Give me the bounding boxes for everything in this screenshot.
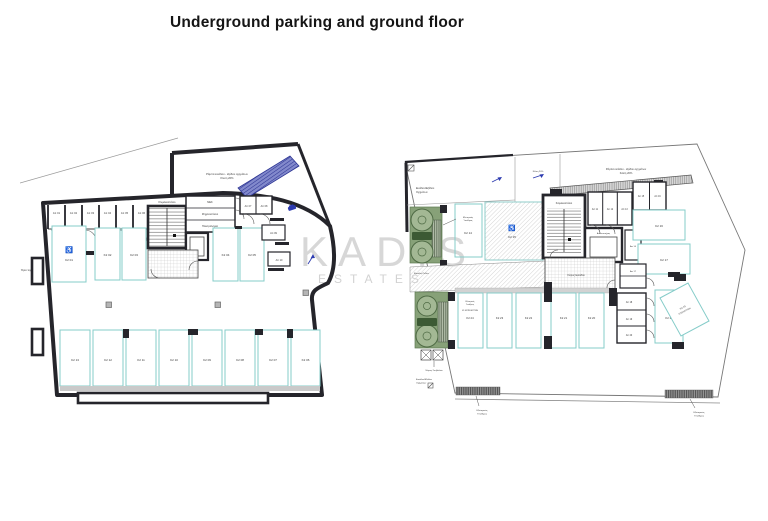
storage-label: Απ 05	[121, 211, 129, 215]
wall-stub	[448, 292, 455, 301]
parking-space	[579, 293, 604, 348]
planter-chip	[417, 318, 437, 326]
ramp-note-line1: Ράμπα εισόδου - εξόδου οχημάτων	[206, 172, 248, 176]
parking-label: Κ2 04	[222, 253, 230, 257]
wall-stub	[123, 329, 129, 338]
column	[303, 290, 309, 296]
ground-plan: Εισόδου/Εξόδου Οχημάτων Κλίση 20% Ράμπα …	[398, 130, 766, 420]
outdoor-label2: Υπαίθριος	[466, 303, 474, 306]
parking-space	[551, 293, 576, 348]
parking-label: Κ2 22	[525, 316, 533, 320]
parking-label: Κ2 07	[269, 358, 277, 362]
wall-stub	[544, 282, 552, 302]
wall-step	[78, 393, 268, 403]
underground-plan: Ράμπα εισόδου - εξόδου οχημάτων Κλίση 20…	[20, 126, 350, 414]
storage-label: Απ 19	[626, 318, 633, 321]
page-title: Underground parking and ground floor	[170, 14, 464, 32]
parking-space	[516, 293, 541, 348]
leader-line	[476, 396, 479, 406]
boundary-wall	[406, 163, 407, 232]
storage-label: Απ 10	[276, 259, 283, 262]
tree-icon	[411, 209, 433, 231]
parking-label: Κ2 13	[71, 358, 79, 362]
ramp-note-line2: Κλίση 20%	[620, 171, 633, 175]
column	[106, 302, 112, 308]
wall-stub	[270, 218, 284, 221]
wall-stub	[448, 340, 455, 349]
planter-chip	[412, 232, 432, 240]
lobby-tiles	[148, 250, 198, 278]
tree-icon	[417, 296, 437, 316]
parking-label: Κ2 15	[508, 235, 516, 239]
elevator-label: Ανελκυστήρας	[597, 232, 610, 235]
upper-wall	[172, 144, 298, 153]
wall-stub	[86, 251, 94, 255]
wall-stub	[275, 242, 289, 245]
parking-label: Κ2 08	[236, 358, 244, 362]
vehicle-access-label2: Οχημάτων	[416, 191, 428, 194]
parking-label: Κ2 06	[302, 358, 310, 362]
wall-stub	[672, 342, 684, 349]
wall-stub	[255, 329, 263, 335]
outdoor-label2: Υπαίθριος	[463, 219, 472, 222]
wall-notch	[32, 258, 43, 284]
storage-label: Απ 06	[138, 211, 146, 215]
staircase-label: Κλιμακοστάσιο	[158, 200, 176, 204]
wall-stub	[188, 329, 198, 335]
wall-stub	[268, 268, 284, 271]
wall-stub	[609, 288, 617, 306]
storage-label: Απ 16	[654, 195, 661, 198]
parking-label: Κ2 16	[655, 224, 663, 228]
parking-label: Κ2 02	[104, 253, 112, 257]
visitors-k1-label: Κ1 ΕΠΙΣΚΕΠΤΩΝ	[462, 310, 478, 312]
vehicle-access-label: Εισόδου/Εξόδου	[416, 378, 433, 381]
ramp-note-line1: Ράμπα εισόδου - εξόδου οχημάτων	[606, 167, 647, 171]
staircase-label: Κλιμακοστάσιο	[556, 202, 573, 205]
parking-space	[487, 293, 512, 348]
parking-label: Κ2 03	[130, 253, 138, 257]
storage-label: Απ 09	[270, 232, 277, 235]
wall-stub	[544, 336, 552, 349]
storage-label: Απ 14	[630, 245, 637, 248]
elevator: Ανελκυστήρας	[585, 228, 622, 262]
storage-label: Απ 13	[621, 208, 628, 211]
storage-label: Απ 02	[70, 211, 78, 215]
garbage-area: Χώρος Σκυβάλων Εισόδου/Εξόδου Οχημάτων	[416, 350, 444, 385]
parking-label: Κ2 11	[137, 358, 145, 362]
parking-top-row: ♿ Κ2 01 Κ2 02 Κ2 03	[52, 226, 146, 282]
curb-strip	[60, 386, 320, 391]
plot-boundary-line	[20, 138, 178, 183]
parking-label: Κ2 24	[466, 316, 474, 320]
survey-tick	[428, 383, 433, 388]
vehicle-access-label: Εισόδου/Εξόδου	[416, 187, 435, 190]
storage-label: Απ 04	[104, 211, 112, 215]
parking-label: Κ2 14	[464, 231, 472, 235]
stair-core: Κλιμακοστάσιο	[148, 200, 186, 248]
curb-strip	[455, 288, 610, 293]
wall-stub	[235, 226, 242, 229]
parking-label: Κ2 05	[248, 253, 256, 257]
storage-label: Απ 12	[607, 208, 614, 211]
storage-label: Απ 18	[626, 301, 633, 304]
sidewalk-strip: Εξωτερικός Υπαίθριος	[456, 387, 500, 416]
outdoor-label2: Υπαίθριος	[477, 413, 487, 416]
ramp-note-line2: Κλίση 20%	[220, 176, 234, 180]
floor-plan-page: Underground parking and ground floor Ράμ…	[0, 0, 768, 521]
wall-stub	[674, 274, 686, 281]
tree-icon	[416, 325, 438, 347]
wall-stub	[287, 329, 293, 338]
parking-space-handicap: ♿ Κ2 15	[485, 202, 543, 260]
storage-label: Απ 20	[626, 334, 633, 337]
pedestrian-label: Είσοδος Πεζών	[414, 272, 430, 275]
outdoor-label: Εξωτερικός	[476, 409, 487, 412]
storage-label: Απ 07	[245, 205, 252, 208]
room-label-machine: Μηχανοστάσιο	[202, 213, 219, 216]
leader-line	[690, 399, 695, 408]
sidewalk-strip: Εξωτερικός Υπαίθριος	[665, 390, 713, 418]
stair-core: Κλιμακοστάσιο	[543, 195, 585, 258]
storage-label: Απ 17	[630, 270, 637, 273]
outdoor-label: Εξωτερικός	[693, 411, 704, 414]
garbage-label: Χώρος Σκυβάλων	[425, 369, 443, 372]
parking-label: Κ2 20	[588, 316, 596, 320]
parking-label: Κ2 09	[203, 358, 211, 362]
tree-icon	[411, 241, 433, 263]
parking-label: Κ2 10	[170, 358, 178, 362]
entrance-label: Χώρος Εισόδου	[567, 274, 585, 277]
outdoor-label: Εξωτερικός	[465, 300, 474, 303]
wall-notch	[32, 329, 43, 355]
vehicle-access-label2: Οχημάτων	[416, 382, 427, 385]
sidewalk-line	[455, 399, 720, 403]
wall-stub	[440, 205, 447, 213]
parking-label: Κ2 01	[65, 258, 73, 262]
slope-note: Κλίση 20%	[533, 170, 544, 173]
parking-label: Κ2 23	[496, 316, 504, 320]
parking-bottom-row: Εξωτερικός Υπαίθριος Κ1 ΕΠΙΣΚΕΠΤΩΝ Κ2 24…	[455, 282, 617, 349]
storage-label: Απ 03	[87, 211, 95, 215]
parking-label: Κ2 21	[560, 316, 568, 320]
storage-label: Απ 15	[638, 195, 645, 198]
storage-label: Απ 11	[592, 208, 599, 211]
outdoor-label: Εξωτερικός	[463, 216, 473, 219]
planter-top	[410, 205, 447, 269]
parking-label: Κ2 12	[104, 358, 112, 362]
parking-label: Κ2 17	[660, 258, 668, 262]
parking-mid-row: Κ2 04 Κ2 05	[213, 226, 264, 281]
parking-space-handicap	[52, 226, 86, 282]
room-label-mek: ΜΕΚ	[207, 201, 213, 204]
storage-label: Απ 01	[53, 211, 61, 215]
ramp-down	[238, 156, 299, 198]
handicap-icon: ♿	[65, 246, 73, 254]
outdoor-label2: Υπαίθριος	[694, 415, 704, 418]
storage-label: Απ 08	[261, 205, 268, 208]
column	[215, 302, 221, 308]
handicap-icon: ♿	[508, 224, 516, 232]
